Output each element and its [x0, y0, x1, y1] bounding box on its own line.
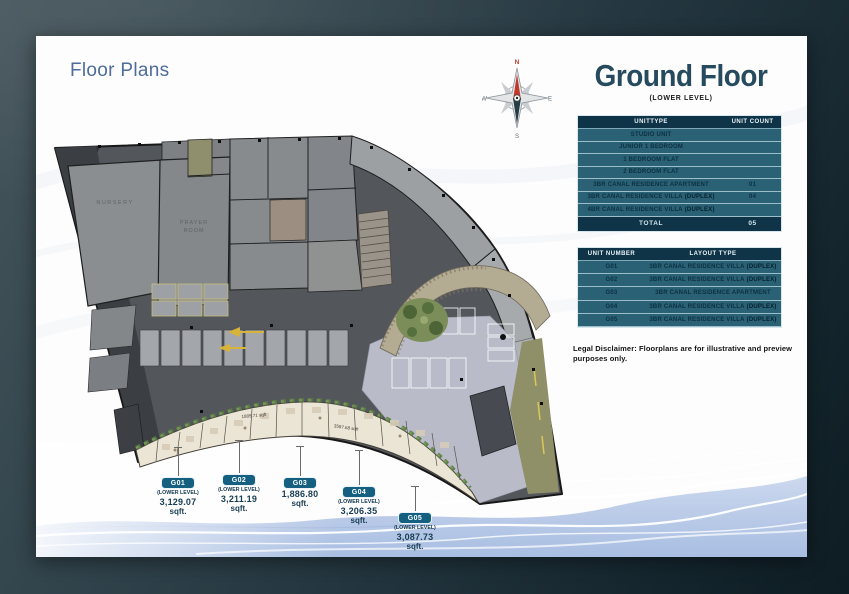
compass-label-n: N	[515, 59, 520, 66]
header-unittype: UNITTYPE	[578, 119, 724, 125]
unit-number: G02	[578, 277, 645, 283]
unit-pill-g01[interactable]: G01	[161, 477, 195, 489]
page-title: Floor Plans	[70, 60, 169, 82]
header-unit-count: UNIT COUNT	[724, 119, 781, 125]
table-row: STUDIO UNIT	[578, 129, 781, 142]
unit-type: STUDIO UNIT	[631, 132, 672, 138]
table-row: G053BR CANAL RESIDENCE VILLA(DUPLEX)	[578, 314, 781, 327]
unit-count: 01	[724, 182, 781, 188]
duplex-tag: (DUPLEX)	[747, 317, 777, 323]
table-row: JUNIOR 1 BEDROOM	[578, 142, 781, 155]
leader-line	[300, 446, 301, 476]
callout-area: 3,087.73	[370, 533, 460, 542]
total-label: TOTAL	[578, 220, 724, 227]
table-row: 1 BEDROOM FLAT	[578, 154, 781, 167]
callout-level: (LOWER LEVEL)	[375, 525, 454, 531]
prayer-room-label-1: PRAYER	[180, 220, 208, 226]
unit-number: G04	[578, 304, 645, 310]
unit-layout-table: UNIT NUMBER LAYOUT TYPE G013BR CANAL RES…	[578, 248, 781, 327]
table-header: UNITTYPE UNIT COUNT	[578, 116, 781, 129]
duplex-tag: (DUPLEX)	[685, 194, 715, 200]
nursery-room	[68, 160, 162, 306]
leader-line	[178, 447, 179, 476]
layout-type: 3BR CANAL RESIDENCE VILLA	[649, 317, 744, 323]
layout-type: 3BR CANAL RESIDENCE APARTMENT	[655, 290, 771, 296]
service-room-3	[308, 240, 362, 292]
callout-area-unit: sqft.	[370, 542, 460, 551]
legal-disclaimer: Legal Disclaimer: Floorplans are for ill…	[573, 344, 807, 364]
prayer-room-label-2: ROOM	[183, 228, 204, 234]
leader-line	[359, 450, 360, 485]
column-dot	[500, 334, 506, 340]
table-total-row: TOTAL 05	[578, 217, 781, 231]
floor-subheading: (LOWER LEVEL)	[536, 95, 807, 102]
duplex-tag: (DUPLEX)	[685, 207, 715, 213]
layout-type: 3BR CANAL RESIDENCE VILLA	[649, 264, 744, 270]
unit-type: 2 BEDROOM FLAT	[623, 169, 679, 175]
landscape-island	[396, 298, 448, 342]
table-row: 2 BEDROOM FLAT	[578, 167, 781, 180]
layout-type: 3BR CANAL RESIDENCE VILLA	[649, 277, 744, 283]
total-value: 05	[724, 220, 781, 227]
table-row: G043BR CANAL RESIDENCE VILLA(DUPLEX)	[578, 301, 781, 314]
duplex-tag: (DUPLEX)	[747, 304, 777, 310]
table-header: UNIT NUMBER LAYOUT TYPE	[578, 248, 781, 261]
unit-type: 4BR CANAL RESIDENCE VILLA	[587, 207, 682, 213]
page-background: Floor Plans N E S W Ground Floor (LOWER …	[0, 0, 849, 594]
unit-type: JUNIOR 1 BEDROOM	[619, 144, 683, 150]
layout-type: 3BR CANAL RESIDENCE VILLA	[649, 304, 744, 310]
duplex-tag: (DUPLEX)	[747, 264, 777, 270]
table-row: 3BR CANAL RESIDENCE APARTMENT01	[578, 179, 781, 192]
callout-g05: G05 (LOWER LEVEL) 3,087.73 sqft.	[370, 486, 460, 551]
unit-number: G01	[578, 264, 645, 270]
nursery-label: NURSERY	[96, 200, 133, 206]
unit-type: 1 BEDROOM FLAT	[623, 157, 679, 163]
compass-hub-dot	[516, 97, 518, 99]
compass-label-w: W	[482, 97, 487, 103]
unit-count: 04	[724, 194, 781, 200]
table-row: G033BR CANAL RESIDENCE APARTMENT	[578, 287, 781, 300]
unit-pill-g03[interactable]: G03	[283, 477, 317, 489]
table-row: G023BR CANAL RESIDENCE VILLA(DUPLEX)	[578, 274, 781, 287]
brochure-page: Floor Plans N E S W Ground Floor (LOWER …	[36, 36, 807, 557]
header-layout-type: LAYOUT TYPE	[645, 251, 781, 257]
unit-number: G05	[578, 317, 645, 323]
leader-line	[239, 440, 240, 473]
table-row: G013BR CANAL RESIDENCE VILLA(DUPLEX)	[578, 261, 781, 274]
leader-line	[415, 486, 416, 511]
section-heading: Ground Floor (LOWER LEVEL)	[536, 58, 807, 102]
duplex-tag: (DUPLEX)	[747, 277, 777, 283]
table-row: 4BR CANAL RESIDENCE VILLA(DUPLEX)	[578, 204, 781, 217]
unit-type: 3BR CANAL RESIDENCE VILLA	[587, 194, 682, 200]
unit-pill-g05[interactable]: G05	[398, 512, 432, 524]
unit-type: 3BR CANAL RESIDENCE APARTMENT	[593, 182, 709, 188]
table-row: 3BR CANAL RESIDENCE VILLA(DUPLEX)04	[578, 192, 781, 205]
floor-heading: Ground Floor	[551, 58, 808, 94]
header-unit-number: UNIT NUMBER	[578, 251, 645, 257]
storage-room	[270, 199, 306, 241]
ramp	[358, 210, 392, 288]
unit-mix-table: UNITTYPE UNIT COUNT STUDIO UNIT JUNIOR 1…	[578, 116, 781, 231]
olive-room	[188, 139, 212, 177]
unit-number: G03	[578, 290, 645, 296]
unit-pill-g02[interactable]: G02	[222, 474, 256, 486]
